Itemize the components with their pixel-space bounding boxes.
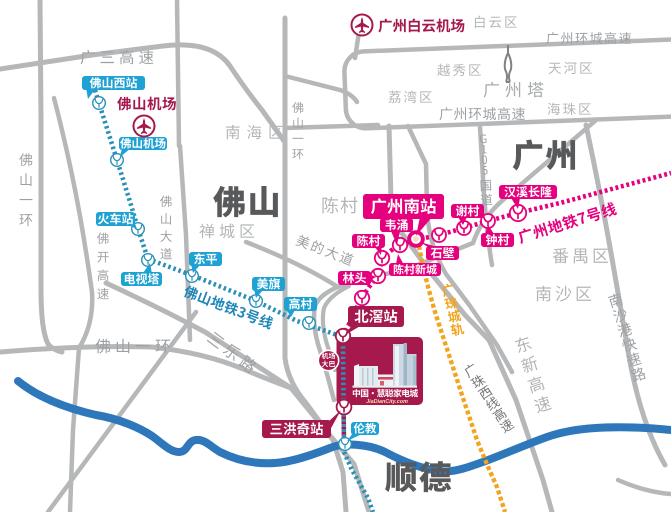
svg-text:JiaDianCity.com: JiaDianCity.com [366,399,408,405]
